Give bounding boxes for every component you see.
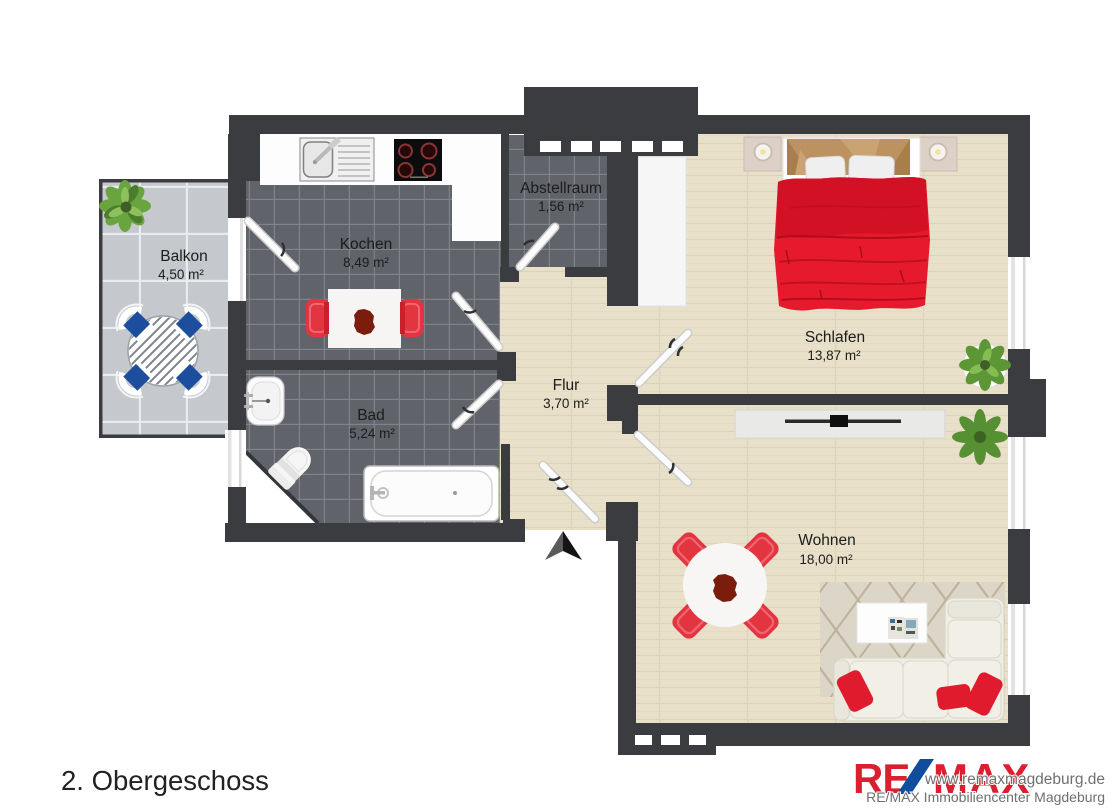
svg-text:18,00 m²: 18,00 m²: [799, 552, 853, 567]
svg-text:Kochen: Kochen: [340, 236, 393, 253]
svg-text:2. Obergeschoss: 2. Obergeschoss: [61, 765, 269, 796]
svg-text:Wohnen: Wohnen: [798, 532, 855, 549]
svg-text:13,87 m²: 13,87 m²: [807, 348, 861, 363]
svg-text:5,24 m²: 5,24 m²: [349, 426, 395, 441]
svg-text:RE/MAX Immobiliencenter Magdeb: RE/MAX Immobiliencenter Magdeburg: [866, 789, 1105, 805]
svg-text:1,56 m²: 1,56 m²: [538, 199, 584, 214]
svg-text:www.remaxmagdeburg.de: www.remaxmagdeburg.de: [924, 771, 1105, 788]
svg-text:Schlafen: Schlafen: [805, 329, 865, 346]
svg-text:Flur: Flur: [553, 377, 580, 394]
svg-text:Bad: Bad: [357, 407, 385, 424]
svg-text:4,50 m²: 4,50 m²: [158, 267, 204, 282]
svg-text:Abstellraum: Abstellraum: [520, 180, 602, 197]
svg-text:Balkon: Balkon: [160, 248, 207, 265]
svg-text:8,49 m²: 8,49 m²: [343, 255, 389, 270]
svg-text:3,70 m²: 3,70 m²: [543, 396, 589, 411]
